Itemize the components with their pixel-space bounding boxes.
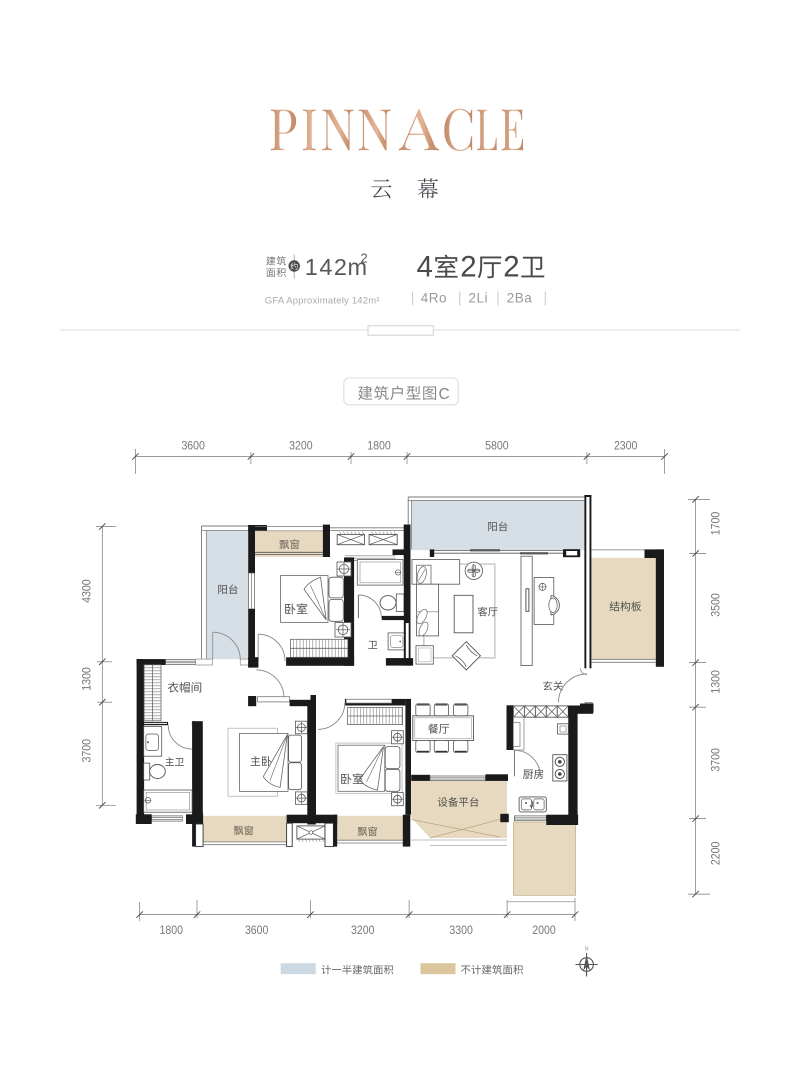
svg-text:3200: 3200 <box>289 441 313 453</box>
svg-text:1300: 1300 <box>81 667 93 691</box>
svg-text:1700: 1700 <box>711 512 723 536</box>
svg-text:N: N <box>585 947 589 953</box>
svg-text:3700: 3700 <box>711 748 723 772</box>
svg-text:3500: 3500 <box>711 593 723 617</box>
svg-text:3700: 3700 <box>81 739 93 763</box>
svg-text:1800: 1800 <box>367 441 391 453</box>
svg-text:2200: 2200 <box>711 842 723 866</box>
svg-text:2: 2 <box>503 250 519 283</box>
svg-text:2: 2 <box>361 251 368 266</box>
svg-text:5800: 5800 <box>485 441 509 453</box>
svg-text:3300: 3300 <box>449 925 473 937</box>
svg-text:C: C <box>439 386 450 403</box>
svg-text:2Ba: 2Ba <box>507 291 533 306</box>
svg-text:1800: 1800 <box>160 925 184 937</box>
svg-text:4: 4 <box>417 250 433 283</box>
svg-text:GFA Approximately 142m²: GFA Approximately 142m² <box>265 296 380 307</box>
svg-text:4Ro: 4Ro <box>421 291 447 306</box>
svg-text:3600: 3600 <box>245 925 269 937</box>
svg-text:2300: 2300 <box>614 441 638 453</box>
svg-text:1300: 1300 <box>711 670 723 694</box>
svg-text:2: 2 <box>460 250 476 283</box>
svg-text:2000: 2000 <box>532 925 556 937</box>
svg-text:142: 142 <box>305 254 349 280</box>
svg-text:3200: 3200 <box>351 925 375 937</box>
svg-text:4300: 4300 <box>81 579 93 603</box>
svg-text:2Li: 2Li <box>469 291 489 306</box>
svg-text:3600: 3600 <box>181 441 205 453</box>
